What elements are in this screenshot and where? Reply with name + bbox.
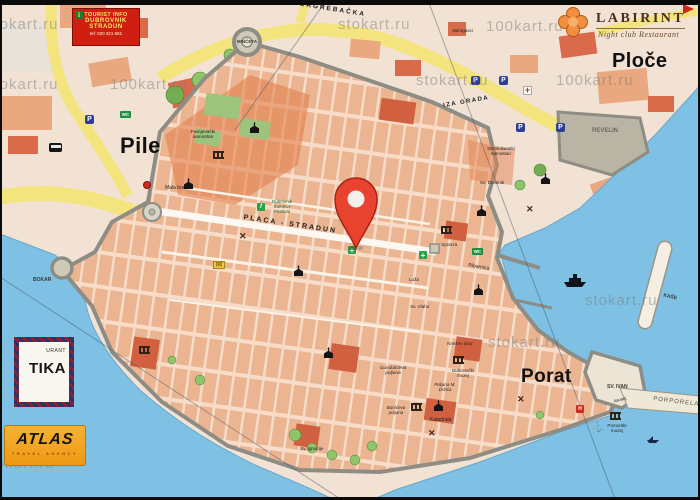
info-icon: i (75, 11, 83, 19)
boat-icon (646, 436, 660, 444)
label-vatrogasci: Vatrogasci (452, 28, 473, 33)
watermark: stokart.ru (0, 76, 59, 93)
atlas-tagline: TRAVEL AGENCY (5, 451, 85, 456)
hotel-icon: H (576, 405, 584, 413)
region-label-ploce: Ploče (612, 50, 667, 72)
label-knezev-dvor: Knežev dvor (447, 341, 473, 346)
tourist-info-sign: i TOURIST INFO DUBROVNIK STRADUN tel: 02… (72, 8, 140, 46)
watermark: stokart.ru (488, 334, 561, 351)
watermark: stokart.ru (338, 16, 411, 33)
labirint-tagline: Night club Restaurant (598, 30, 679, 39)
frame-edge-left (0, 0, 2, 500)
x-mark-icon: ✕ (239, 231, 247, 242)
region-label-pile: Pile (120, 134, 161, 159)
wc-icon: WC (472, 248, 483, 255)
parking-icon: P (556, 123, 565, 132)
nautika-line2: TIKA (19, 360, 66, 377)
parking-icon: P (516, 123, 525, 132)
museum-icon (453, 356, 464, 364)
first-aid-icon: + (523, 86, 532, 95)
label-sv-vlaho: Sv. Vlaho (410, 304, 429, 309)
watermark: 100kart.ru (486, 18, 564, 35)
bus-window (51, 145, 61, 148)
bus-stop-icon (49, 143, 62, 152)
bokar-fort (52, 258, 72, 278)
museum-icon (213, 151, 224, 159)
fort-label-revelin: REVELIN (592, 128, 618, 135)
tourist-info-phone: tel: 020 321 561 (73, 31, 139, 36)
location-pin[interactable] (330, 172, 382, 257)
watermark: 100kart.ru (110, 76, 188, 93)
x-mark-icon: ✕ (517, 394, 525, 405)
nautika-sign: URANT TIKA (14, 337, 74, 407)
label-poljana-m-drzica: Poljana M. Držića (430, 382, 460, 392)
label-dubrovacki-muzej: Dubrovački muzej (449, 369, 477, 379)
label-pomorski-muzej: Pomorski muzej (602, 423, 632, 433)
wc-icon: WC (120, 111, 131, 118)
atlas-logo: ATLAS TRAVEL AGENCY (4, 425, 86, 466)
label-luza: Luža (409, 277, 419, 282)
label-dominikanski-samostan: Dominikanski samostan (482, 146, 520, 156)
post-office-icon: ✉ (213, 261, 225, 269)
region-label-porat: Porat (521, 366, 572, 387)
frame-edge-top (0, 0, 700, 5)
parking-icon: P (499, 76, 508, 85)
labirint-logo: LABIRINT Night club Restaurant (558, 7, 694, 41)
atlas-name: ATLAS (4, 431, 86, 449)
museum-icon (441, 226, 452, 234)
clock-tower (430, 244, 439, 253)
label-buniceva-poljana: Bunićeva poljana (383, 405, 409, 415)
x-mark-icon: ✕ (428, 428, 436, 439)
dubrovnik-map[interactable]: Pile Ploče Porat PLACA - STRADUN ZAGREBA… (0, 0, 700, 500)
anchor-icon: ⚓ (591, 422, 603, 433)
label-summer-festival: Dubrovnik Summer Festival (267, 199, 297, 214)
label-sv-dominik: Sv. Dominik (480, 180, 504, 185)
festival-icon: f (257, 203, 265, 211)
pharmacy-icon: + (419, 251, 427, 259)
museum-icon (411, 403, 422, 411)
label-franjevacki-samostan: Franjevački samostan (186, 130, 220, 141)
nautika-sign-inner: URANT TIKA (19, 342, 69, 402)
fort-label-minceta: MINČETA (234, 39, 260, 44)
watermark: 100kart.ru (556, 72, 634, 89)
parking-icon: P (85, 115, 94, 124)
label-sponza: Sponza (441, 243, 457, 248)
label-sv-ignacije: Sv. Ignacije (300, 446, 323, 451)
ship-icon (562, 271, 588, 289)
nautika-line1: URANT (19, 348, 66, 354)
watermark: stokart.ru (416, 72, 489, 89)
fort-label-bokar: BOKAR (33, 278, 51, 284)
labirint-flower-icon (558, 7, 588, 37)
museum-icon (610, 412, 621, 420)
x-mark-icon: ✕ (526, 204, 534, 215)
museum-icon (139, 346, 150, 354)
label-katedrala: Katedrala (430, 418, 451, 424)
fort-label-sv-ivan: SV. IVAN (607, 385, 628, 391)
label-gunduliceva-poljana: Gundulićeva poljana (375, 366, 411, 377)
poi-marker-icon (143, 181, 151, 189)
tourist-info-line3: STRADUN (73, 24, 139, 30)
watermark: stokart.ru (0, 16, 59, 33)
watermark: stokart.ru (585, 292, 658, 309)
labirint-name: LABIRINT (596, 11, 685, 29)
